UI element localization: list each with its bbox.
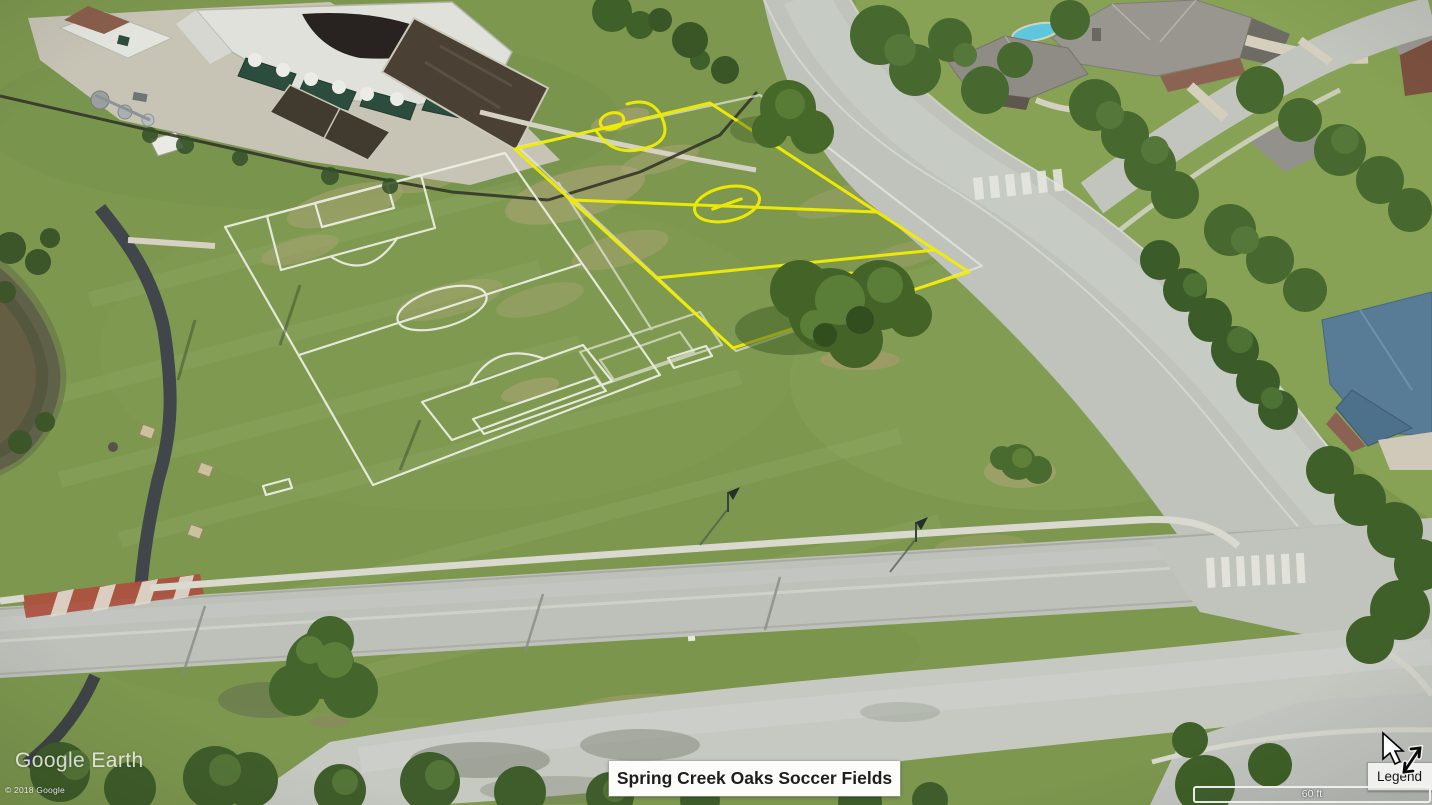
vignette: [0, 0, 1432, 805]
resize-arrow-icon: [1404, 748, 1420, 772]
placemark-label-text: Spring Creek Oaks Soccer Fields: [617, 768, 892, 789]
scale-label: 60 ft: [1302, 788, 1322, 800]
cursor-overlay: [1376, 726, 1432, 782]
scale-bar: 60 ft: [1193, 786, 1431, 803]
aerial-imagery: [0, 0, 1432, 805]
copyright-text: © 2018 Google: [5, 785, 65, 795]
placemark-label: Spring Creek Oaks Soccer Fields: [609, 761, 900, 796]
arrow-cursor-icon: [1383, 733, 1403, 764]
map-view[interactable]: Google Earth © 2018 Google Spring Creek …: [0, 0, 1432, 805]
google-earth-watermark: Google Earth: [15, 749, 144, 773]
